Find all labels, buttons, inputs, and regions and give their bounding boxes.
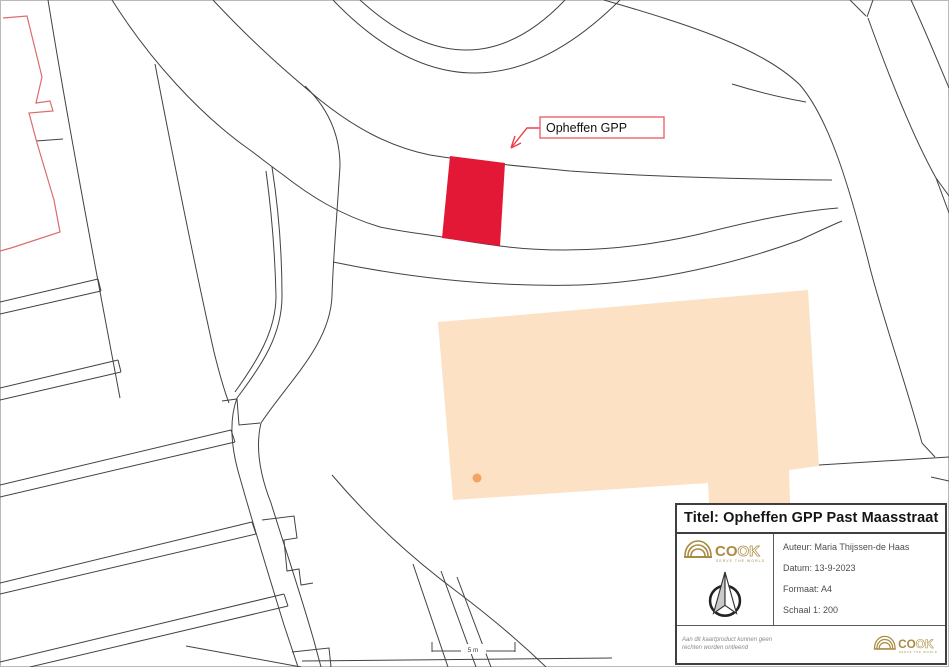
disclaimer-line1: Aan dit kaartproduct kunnen geen: [682, 637, 772, 645]
building-dot: [473, 474, 482, 483]
logo-text-solid: CO: [898, 638, 916, 651]
scale-bar-label: 5 m: [468, 647, 479, 654]
gpp-parcel: [442, 156, 505, 246]
svg-text:COOK: COOK: [898, 638, 934, 651]
north-arrow-icon: [702, 569, 748, 621]
author-field: Auteur: Maria Thijssen-de Haas: [783, 542, 945, 552]
building-outline: [438, 290, 819, 536]
building-footprint: [438, 290, 819, 536]
cook-logo-icon: COOK SERVE THE WORLD: [683, 538, 767, 566]
map-title: Titel: Opheffen GPP Past Maasstraat: [677, 505, 945, 534]
format-field: Formaat: A4: [783, 584, 945, 594]
logo-text-outline: OK: [738, 543, 761, 560]
gpp-label: Opheffen GPP: [546, 121, 627, 135]
logo-tagline: SERVE THE WORLD: [899, 649, 938, 653]
leader-arrow: [511, 128, 540, 148]
svg-text:COOK: COOK: [715, 543, 760, 560]
disclaimer: Aan dit kaartproduct kunnen geen rechten…: [682, 637, 772, 652]
title-block: Titel: Opheffen GPP Past Maasstraat COOK…: [675, 503, 947, 665]
red-outline-building: [0, 16, 60, 251]
cook-logo-small-icon: COOK SERVE THE WORLD: [873, 634, 939, 656]
logo-cell: COOK SERVE THE WORLD: [677, 534, 774, 625]
disclaimer-line2: rechten worden ontleend: [682, 645, 772, 653]
scale-field: Schaal 1: 200: [783, 605, 945, 615]
info-cell: Auteur: Maria Thijssen-de Haas Datum: 13…: [774, 534, 945, 625]
logo-text-solid: CO: [715, 543, 738, 560]
date-field: Datum: 13-9-2023: [783, 563, 945, 573]
scale-bar: 5 m: [432, 642, 515, 654]
title-block-footer: Aan dit kaartproduct kunnen geen rechten…: [677, 626, 945, 663]
map-canvas: Opheffen GPP 5 m Titel: Opheffen GPP Pas…: [0, 0, 949, 667]
gpp-annotation: Opheffen GPP: [511, 117, 664, 148]
logo-text-outline: OK: [916, 638, 934, 651]
logo-tagline: SERVE THE WORLD: [716, 559, 765, 563]
